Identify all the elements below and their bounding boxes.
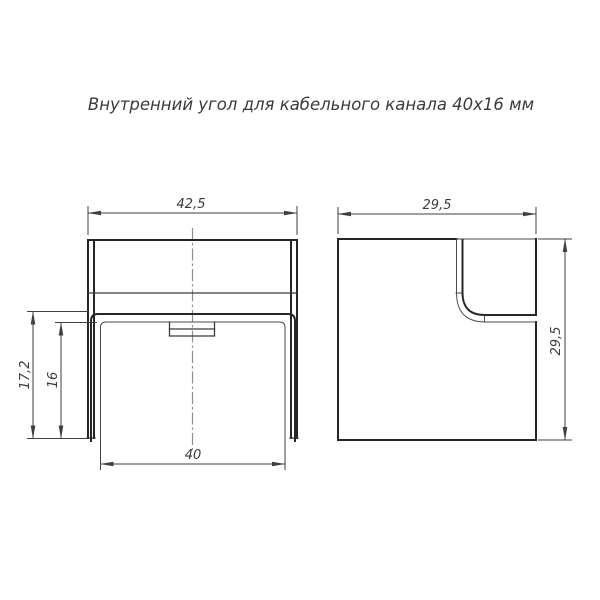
dim-side-height: 29,5 [538, 239, 572, 440]
dim-label: 42,5 [177, 197, 206, 212]
dim-label: 40 [185, 448, 202, 463]
corner-fillet-inner [463, 293, 537, 315]
dim-label: 29,5 [549, 327, 564, 356]
corner-fillet-outer [457, 293, 537, 322]
dim-label: 16 [46, 372, 61, 389]
dim-label: 29,5 [423, 198, 452, 213]
front-view [87, 228, 298, 450]
side-view [338, 239, 536, 440]
technical-drawing: Внутренний угол для кабельного канала 40… [0, 0, 600, 600]
dim-side-width: 29,5 [338, 198, 536, 234]
drawing-title: Внутренний угол для кабельного канала 40… [88, 95, 534, 114]
dim-front-inner-width: 40 [101, 441, 286, 470]
dim-front-inner-height: 16 [46, 323, 97, 439]
dim-label: 17,2 [18, 361, 33, 390]
